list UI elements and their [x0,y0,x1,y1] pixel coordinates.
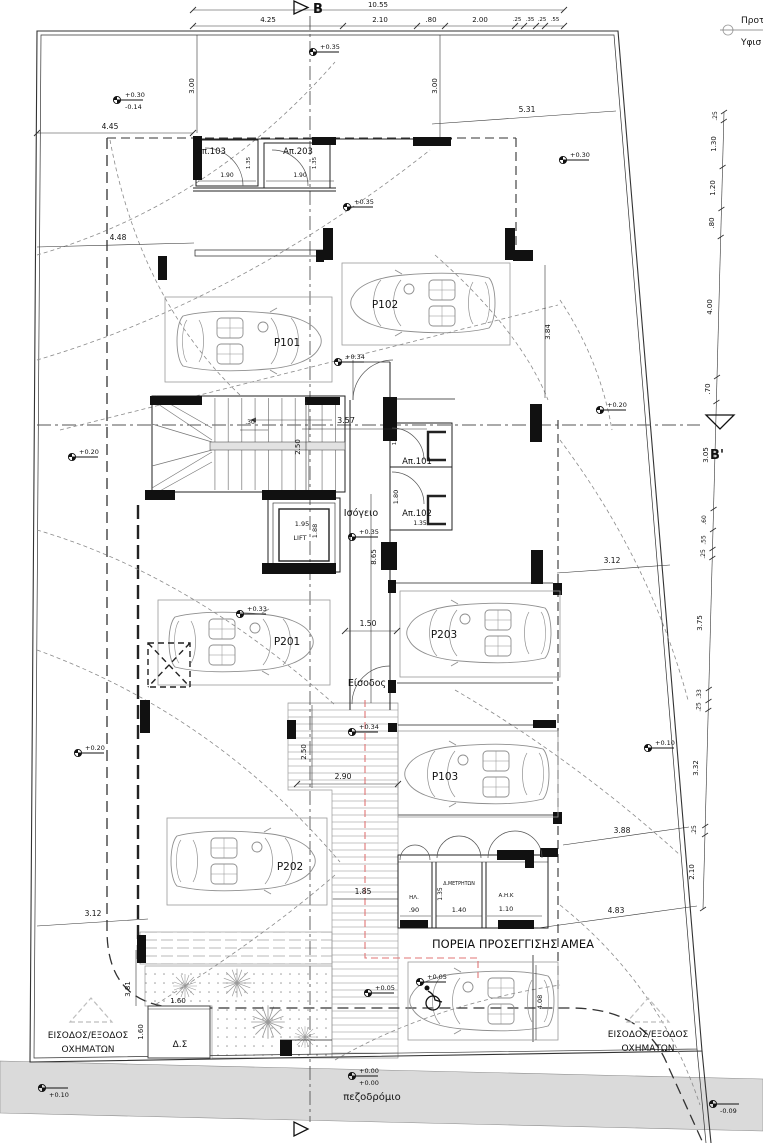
label-access-right-2: ΟΧΗΜΑΤΩΝ [621,1044,674,1054]
label-electrical: ΗΛ. [409,895,419,901]
dim-188: 1.88 [311,524,319,538]
floor-plan-page: 10.55 4.25 2.10 .80 2.00 .25 .35 .25 .55… [0,0,763,1143]
dim-110: 1.10 [499,905,513,913]
dim-right-7: .60 [701,515,708,525]
legend: Προτ Υφισ [720,16,763,48]
lvl-020b: +0.20 [79,448,99,456]
dim-090: .90 [409,906,419,914]
lvl-000a: +0.00 [359,1067,379,1075]
lvl-034b: +0.34 [359,723,379,731]
label-ahk: Α.Η.Κ [498,893,513,899]
dim-531: 5.31 [519,105,536,114]
dim-right-1: 1.30 [710,136,718,152]
lvl-020a: +0.20 [607,401,627,409]
dim-150: 1.50 [360,619,377,628]
dim-right-3: .80 [708,217,716,228]
dim-right-13: 3.32 [692,760,700,776]
label-access-right-1: ΕΙΣΟΔΟΣ/ΕΞΟΔΟΣ [608,1030,689,1040]
dim-865: 8.65 [370,549,378,565]
dim-top-2: .80 [425,16,436,24]
label-ap101: Απ.101 [402,457,432,467]
dim-top-4: .25 [513,17,522,23]
label-amea-route: ΠΟΡΕΙΑ ΠΡΟΣΕΓΓΙΣΗΣ ΑΜΕΑ [432,937,594,951]
legend-existing: Υφισ [740,38,761,48]
dim-357: 3.57 [337,416,355,425]
dim-right-15: 2.10 [688,864,696,880]
dim-top-6: .25 [538,17,547,23]
dim-right-5: .70 [704,383,712,394]
dim-top-5: .35 [526,17,535,23]
label-entrance: Είσοδος [348,678,386,689]
dim-top-total: 10.55 [368,1,388,9]
section-bprime-label: B' [710,448,724,463]
dim-483: 4.83 [608,906,625,915]
dim-445: 4.45 [102,122,119,131]
dim-right-4: 4.00 [706,299,714,315]
lvl-005b: +0.05 [427,973,447,981]
label-ap102: Απ.102 [402,509,432,519]
lvl-033: +0.33 [247,605,267,613]
dim-195: 1.95 [295,520,309,528]
dim-right-9: .25 [700,549,707,559]
label-access-left-1: ΕΙΣΟΔΟΣ/ΕΞΟΔΟΣ [48,1031,129,1041]
dim-right-11: .33 [696,689,703,699]
dim-135-b: 1.35 [312,156,318,169]
lvl-020c: +0.20 [85,744,105,752]
lvl-035a: +0.35 [320,43,340,51]
dim-250-walk: 2.50 [300,744,308,760]
lvl-000b: +0.00 [359,1079,379,1087]
dim-135-d: 1.35 [437,887,444,901]
dim-right-14: .25 [691,825,698,835]
dim-140: 1.40 [452,906,466,914]
dim-160-h: 1.60 [170,997,186,1005]
dim-16: 1.6 [392,436,398,445]
label-meters: Δ.ΜΕΤΡΗΤΩΝ [443,881,475,887]
dim-right-6: 3.05 [702,447,710,463]
dim-388: 3.88 [614,826,631,835]
section-b-label: B [313,2,323,17]
staircase [152,396,345,492]
label-ap203: Απ.203 [283,147,313,157]
label-lift: LIFT [293,534,306,542]
dim-300-right: 3.00 [431,78,439,94]
dim-right-2: 1.20 [709,180,717,196]
dim-190-b: 1.90 [293,172,307,179]
label-p203: P203 [431,629,457,641]
dim-right-8: .55 [701,535,708,545]
site-plan-svg: 10.55 4.25 2.10 .80 2.00 .25 .35 .25 .55… [0,0,763,1143]
dim-300-left: 3.00 [188,78,196,94]
dim-312-right: 3.12 [604,556,621,565]
label-bins: Δ.Σ [173,1040,188,1050]
dim-448: 4.48 [110,233,127,242]
label-p103: P103 [432,771,458,783]
wheelchair-icon [425,986,443,1011]
legend-proposed: Προτ [741,16,763,26]
dim-185: 1.85 [355,887,372,896]
dim-top-1: 2.10 [372,16,388,24]
label-sidewalk: πεζοδρόμιο [343,1091,400,1103]
dim-180: 1.80 [392,490,400,504]
dim-top-7: .55 [551,17,560,23]
label-isogio: Ισόγειο [344,508,379,519]
dim-right-10: 3.75 [696,615,704,631]
label-p202: P202 [277,861,303,873]
lvl-030b: +0.30 [570,151,590,159]
lvl-m009: -0.09 [720,1107,737,1115]
label-p201: P201 [274,636,300,648]
deck-strip [140,932,332,964]
dim-right-0: .25 [712,111,719,121]
dim-top-3: 2.00 [472,16,488,24]
lvl-m014: -0.14 [125,103,142,111]
label-ap103: Απ.103 [196,147,226,157]
label-p101: P101 [274,337,300,349]
dim-135-c: 1.35 [413,520,427,527]
lvl-030a: +0.30 [125,91,145,99]
lvl-035c: +0.35 [359,528,379,536]
dim-381: 3.81 [124,981,132,997]
dim-160-v: 1.60 [137,1024,145,1040]
label-p102: P102 [372,299,398,311]
dim-030: .30 [245,419,255,426]
dim-top-0: 4.25 [260,16,276,24]
dim-250-stair: 2.50 [294,439,302,455]
dim-408: 4.08 [536,995,544,1009]
lvl-010a: +0.10 [655,739,675,747]
dim-290: 2.90 [335,772,352,781]
dim-190-a: 1.90 [220,172,234,179]
dim-135-a: 1.35 [246,156,252,169]
dim-384: 3.84 [544,324,552,340]
lvl-035b: +0.35 [354,198,374,206]
dim-312-left: 3.12 [85,909,102,918]
lvl-034a: +0.34 [345,353,365,361]
label-access-left-2: ΟΧΗΜΑΤΩΝ [61,1045,114,1055]
dim-right-12: .25 [696,702,703,712]
lvl-010b: +0.10 [49,1091,69,1099]
lvl-005a: +0.05 [375,984,395,992]
